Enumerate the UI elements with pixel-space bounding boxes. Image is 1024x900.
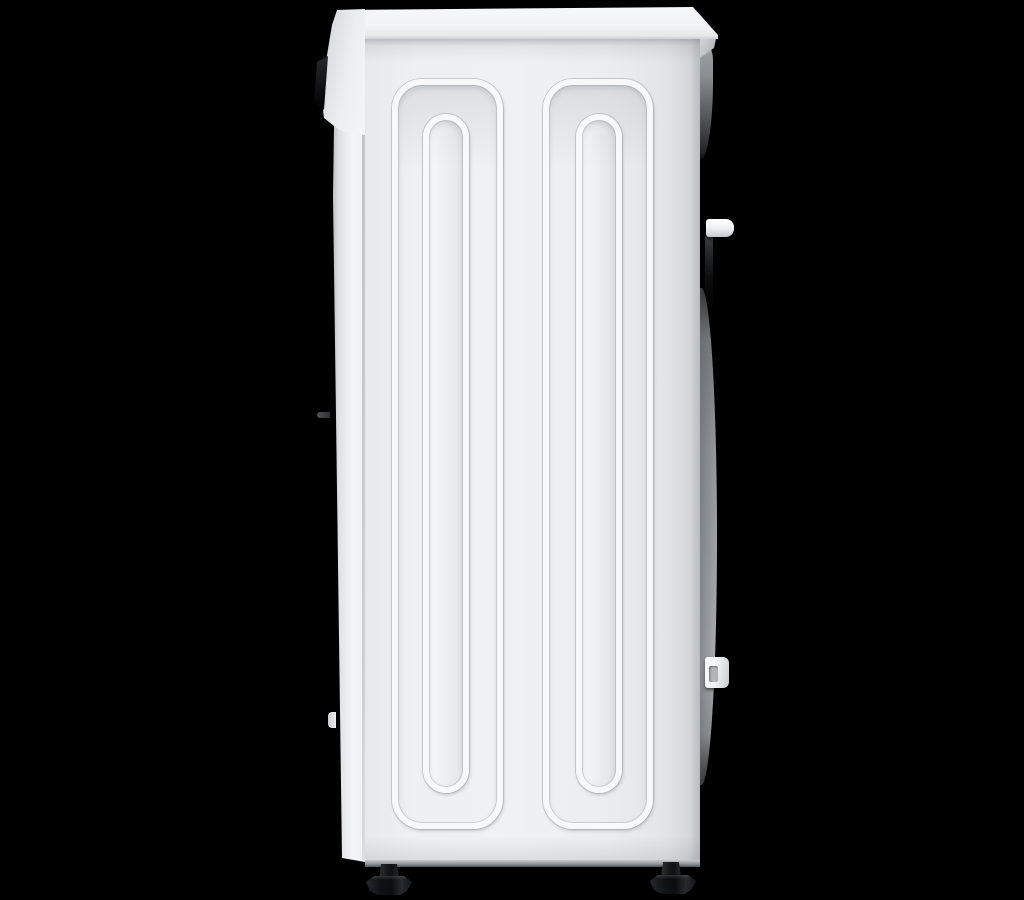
emboss-channel-inner-right — [576, 114, 622, 793]
hose-clip-upper — [706, 219, 734, 237]
leveling-foot-front — [366, 876, 412, 895]
emboss-channel-inner-left — [423, 114, 469, 793]
rear-panel-top-edge — [699, 42, 713, 162]
door-seam-mark — [317, 412, 330, 418]
front-corner-seam — [362, 39, 365, 860]
hose-clip-notch — [709, 666, 718, 682]
hose-clip-lower — [705, 657, 729, 688]
leveling-foot-rear — [650, 875, 696, 894]
product-photo — [0, 0, 1024, 900]
door-hinge-nub — [328, 712, 336, 728]
rear-panel-shadow — [705, 236, 713, 310]
front-panel-edge — [332, 126, 365, 862]
rear-panel-bulge — [700, 288, 717, 785]
base-bottom-edge — [365, 860, 700, 867]
top-lid — [337, 7, 718, 39]
